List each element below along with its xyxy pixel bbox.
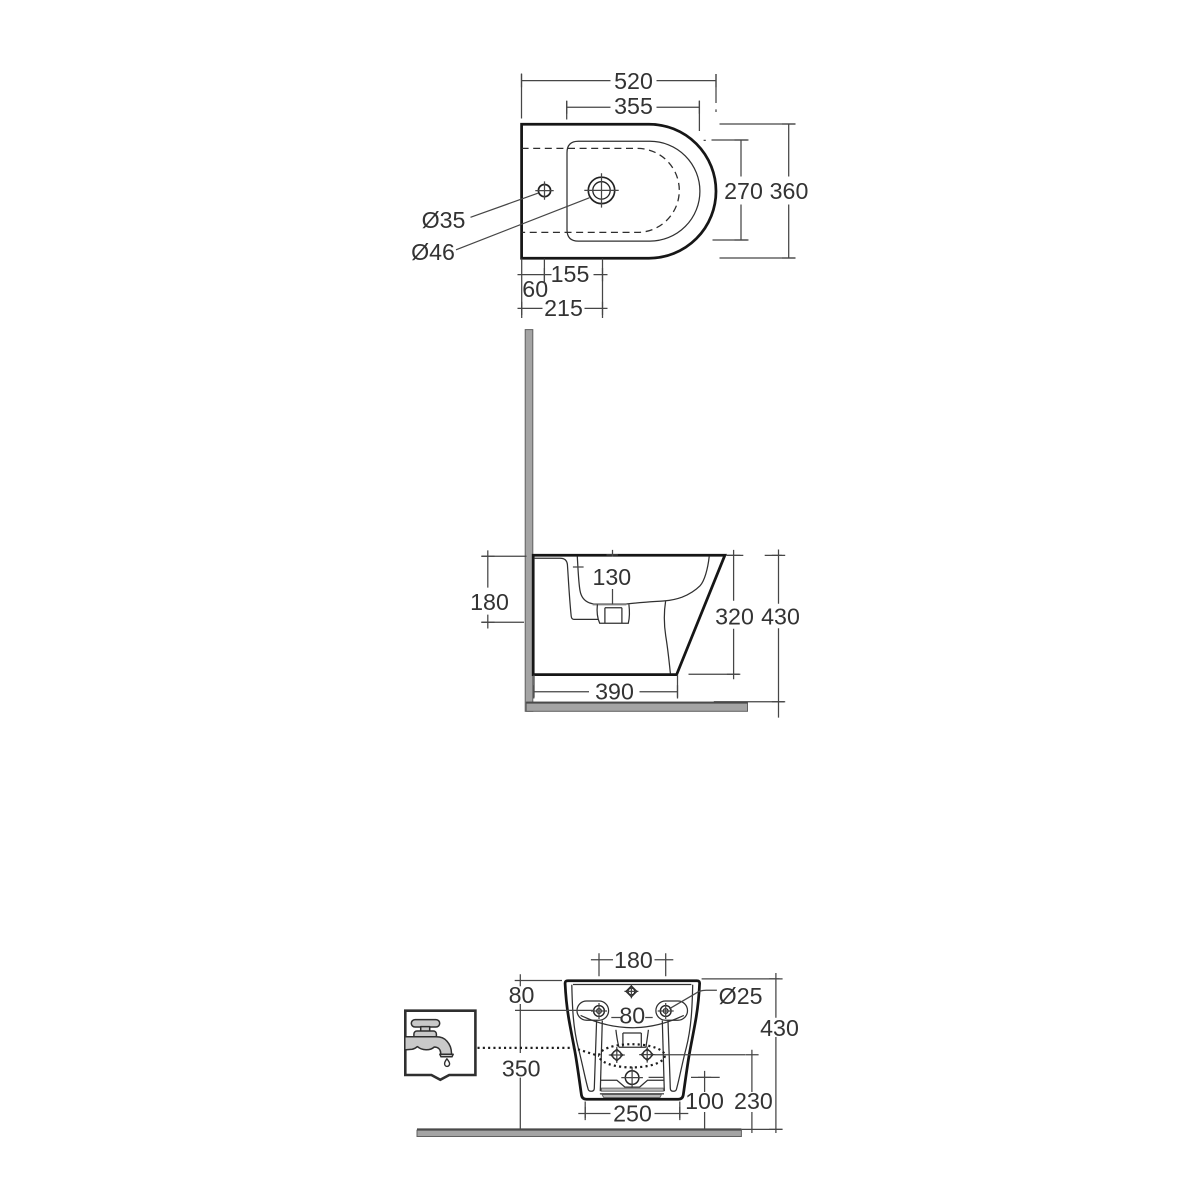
svg-text:350: 350 <box>502 1056 541 1082</box>
svg-text:360: 360 <box>770 178 809 204</box>
svg-text:80: 80 <box>509 982 535 1008</box>
svg-text:270: 270 <box>724 178 763 204</box>
svg-text:430: 430 <box>760 1015 799 1041</box>
svg-text:250: 250 <box>613 1101 652 1127</box>
svg-text:155: 155 <box>551 261 590 287</box>
svg-text:355: 355 <box>614 93 653 119</box>
svg-text:100: 100 <box>685 1088 724 1114</box>
svg-text:80: 80 <box>619 1002 645 1028</box>
svg-text:Ø46: Ø46 <box>411 239 455 265</box>
svg-text:430: 430 <box>761 604 800 630</box>
svg-text:Ø35: Ø35 <box>422 207 466 233</box>
svg-text:Ø25: Ø25 <box>719 983 763 1009</box>
svg-text:180: 180 <box>614 947 653 973</box>
svg-text:520: 520 <box>614 68 653 94</box>
svg-text:230: 230 <box>734 1088 773 1114</box>
svg-text:215: 215 <box>544 295 583 321</box>
svg-text:130: 130 <box>592 564 631 590</box>
svg-text:390: 390 <box>595 679 634 705</box>
svg-text:180: 180 <box>470 589 509 615</box>
svg-text:320: 320 <box>715 604 754 630</box>
